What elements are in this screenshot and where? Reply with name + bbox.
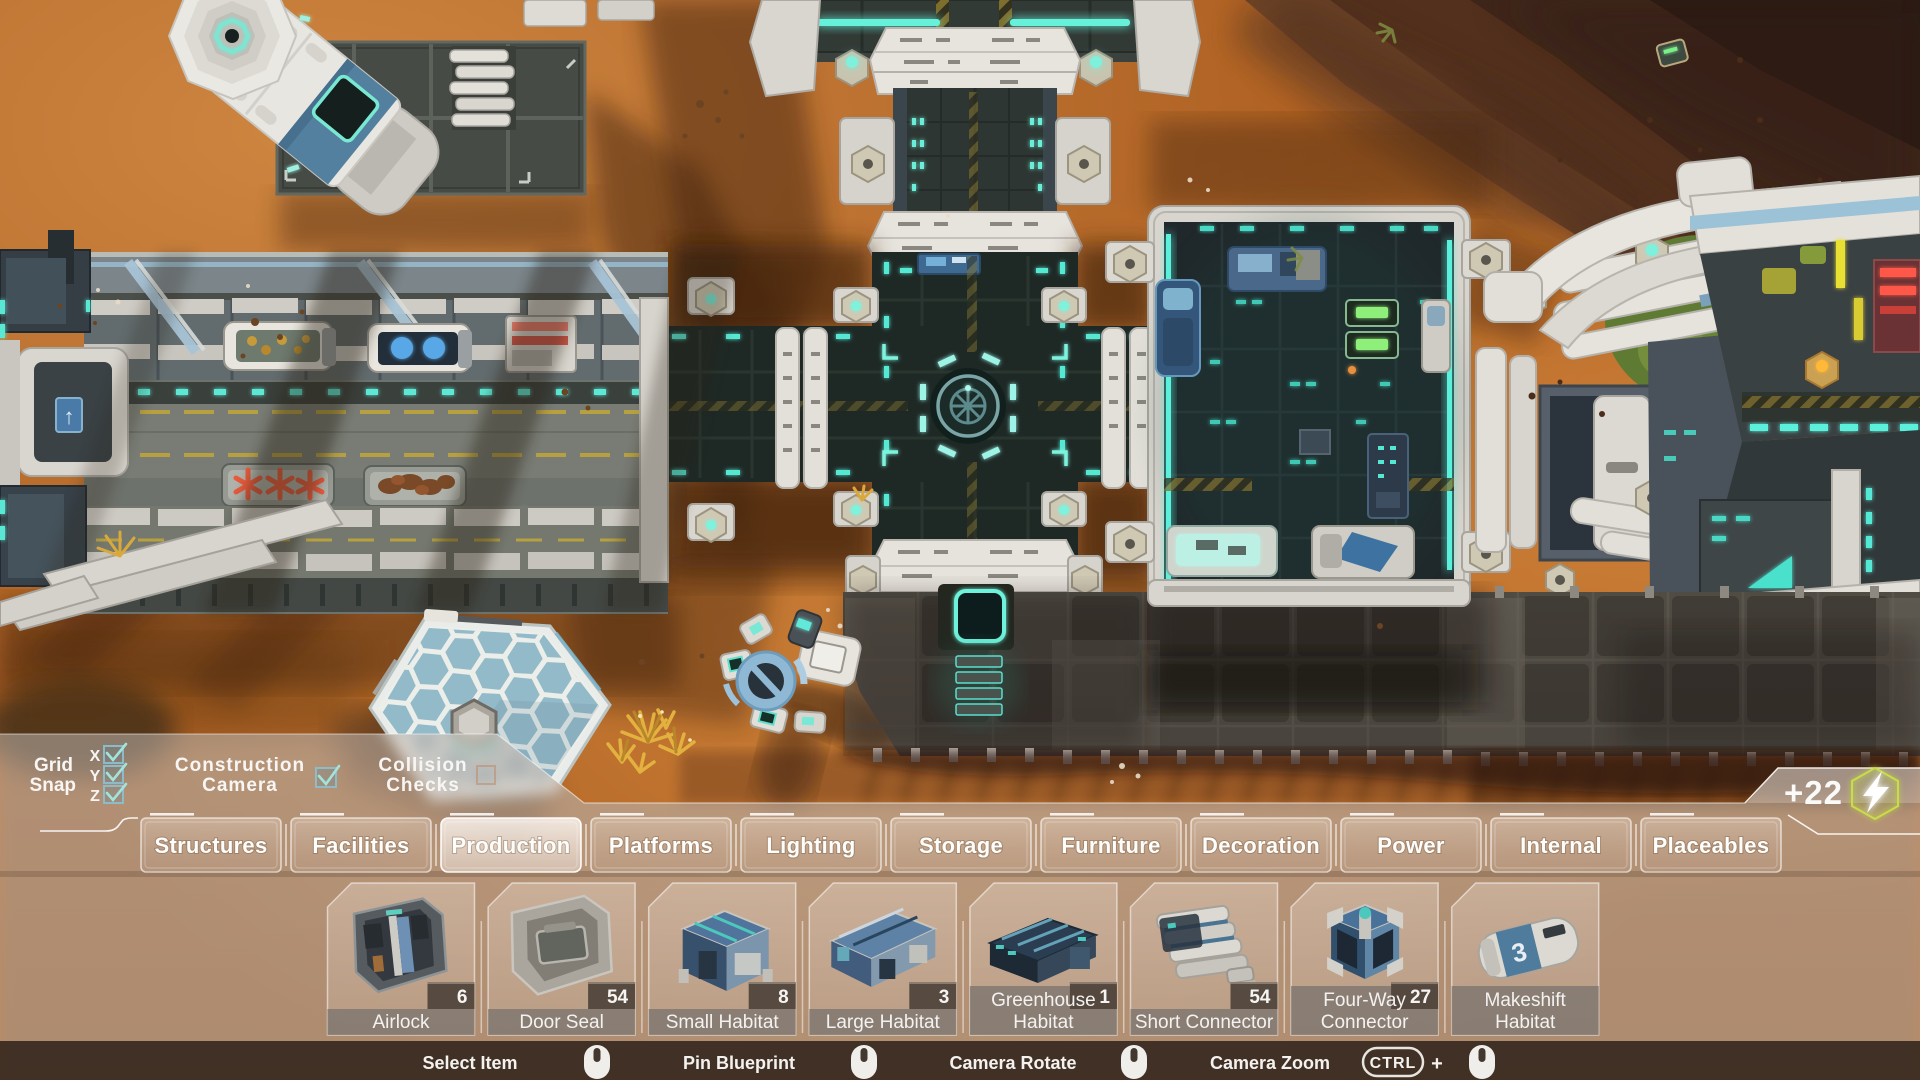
svg-text:27: 27 — [1410, 987, 1431, 1008]
svg-text:3: 3 — [939, 987, 950, 1008]
svg-text:Camera: Camera — [202, 775, 278, 796]
svg-text:Placeables: Placeables — [1653, 833, 1770, 858]
svg-text:Pin Blueprint: Pin Blueprint — [683, 1053, 795, 1073]
svg-text:Collision: Collision — [378, 755, 467, 776]
svg-text:Structures: Structures — [154, 833, 267, 858]
svg-text:Snap: Snap — [30, 775, 76, 796]
svg-text:Camera Rotate: Camera Rotate — [949, 1053, 1076, 1073]
svg-text:Power: Power — [1377, 833, 1445, 858]
svg-text:Grid: Grid — [34, 755, 73, 776]
svg-text:Habitat: Habitat — [1495, 1012, 1556, 1033]
svg-text:Checks: Checks — [386, 775, 460, 796]
svg-text:+22: +22 — [1784, 774, 1843, 811]
svg-text:Small Habitat: Small Habitat — [666, 1012, 780, 1033]
svg-text:Select Item: Select Item — [422, 1053, 517, 1073]
svg-text:CTRL: CTRL — [1370, 1055, 1417, 1072]
svg-text:+: + — [1431, 1053, 1443, 1075]
svg-text:Internal: Internal — [1520, 833, 1602, 858]
svg-text:6: 6 — [457, 987, 468, 1008]
svg-text:Decoration: Decoration — [1202, 833, 1320, 858]
svg-text:Lighting: Lighting — [766, 833, 855, 858]
svg-text:Furniture: Furniture — [1061, 833, 1160, 858]
svg-text:Production: Production — [451, 833, 570, 858]
svg-text:Short Connector: Short Connector — [1135, 1012, 1274, 1033]
svg-text:54: 54 — [607, 987, 629, 1008]
svg-text:Z: Z — [90, 788, 100, 805]
svg-text:Construction: Construction — [175, 755, 305, 776]
svg-text:8: 8 — [778, 987, 789, 1008]
svg-text:Camera Zoom: Camera Zoom — [1210, 1053, 1330, 1073]
svg-text:Door Seal: Door Seal — [519, 1012, 604, 1033]
svg-text:Connector: Connector — [1321, 1012, 1409, 1033]
svg-text:Facilities: Facilities — [312, 833, 409, 858]
svg-text:Greenhouse: Greenhouse — [991, 990, 1096, 1011]
svg-text:Storage: Storage — [919, 833, 1003, 858]
svg-text:1: 1 — [1099, 987, 1110, 1008]
svg-text:Habitat: Habitat — [1013, 1012, 1074, 1033]
svg-text:X: X — [90, 748, 101, 765]
svg-text:Airlock: Airlock — [372, 1012, 430, 1033]
svg-text:54: 54 — [1249, 987, 1271, 1008]
svg-text:Large Habitat: Large Habitat — [826, 1012, 941, 1033]
svg-text:Four-Way: Four-Way — [1323, 990, 1406, 1011]
svg-text:Makeshift: Makeshift — [1485, 990, 1567, 1011]
svg-text:Y: Y — [90, 768, 101, 785]
svg-text:Platforms: Platforms — [609, 833, 713, 858]
